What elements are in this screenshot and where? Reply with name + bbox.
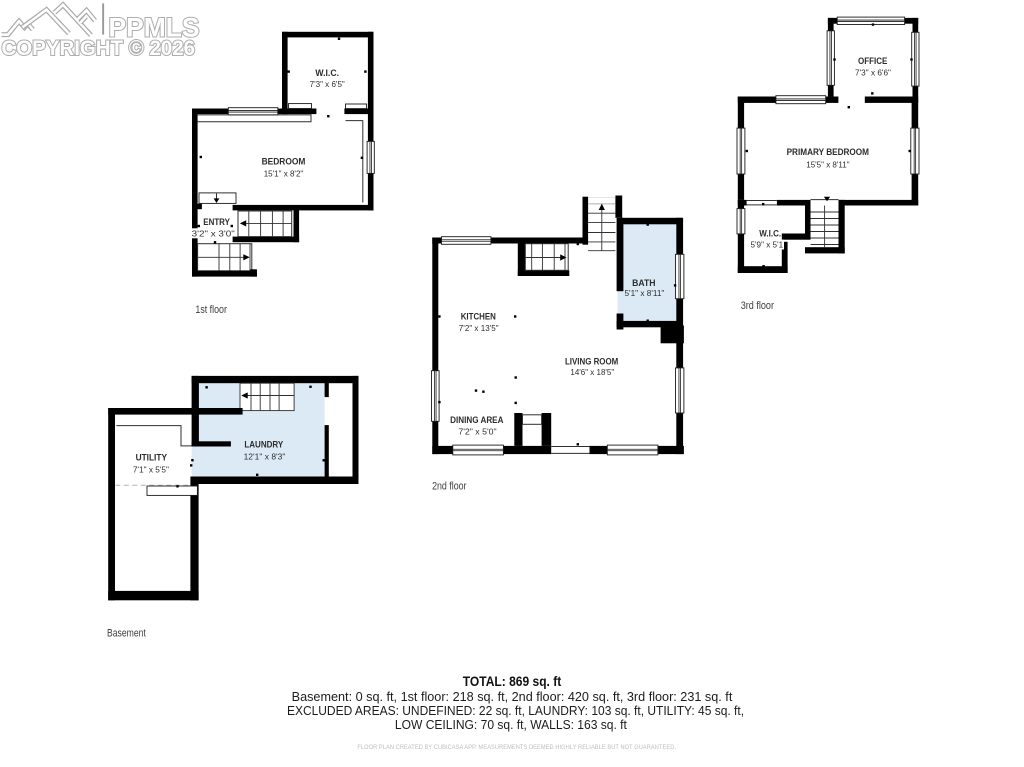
svg-text:W.I.C.: W.I.C. <box>759 229 781 239</box>
svg-text:7'2" x 13'5": 7'2" x 13'5" <box>459 323 499 333</box>
svg-text:7'1" x 5'5": 7'1" x 5'5" <box>133 465 169 475</box>
svg-text:BATH: BATH <box>632 278 656 288</box>
svg-text:BEDROOM: BEDROOM <box>262 157 306 167</box>
svg-text:W.I.C.: W.I.C. <box>315 68 339 78</box>
svg-text:2nd floor: 2nd floor <box>432 480 467 492</box>
svg-text:DINING AREA: DINING AREA <box>450 415 504 425</box>
svg-text:COPYRIGHT © 2026: COPYRIGHT © 2026 <box>2 36 196 60</box>
svg-text:Basement: 0 sq. ft, 1st floor:: Basement: 0 sq. ft, 1st floor: 218 sq. f… <box>292 689 733 704</box>
svg-text:PRIMARY BEDROOM: PRIMARY BEDROOM <box>787 147 870 157</box>
svg-text:OFFICE: OFFICE <box>858 56 887 66</box>
svg-text:KITCHEN: KITCHEN <box>461 312 497 322</box>
svg-text:7'3" x 6'5": 7'3" x 6'5" <box>310 79 345 89</box>
svg-text:15'5" x 8'11": 15'5" x 8'11" <box>806 160 849 170</box>
svg-text:LAUNDRY: LAUNDRY <box>244 440 283 450</box>
svg-text:7'2" x 5'0": 7'2" x 5'0" <box>458 426 496 436</box>
svg-text:12'1" x 8'3": 12'1" x 8'3" <box>244 451 286 461</box>
svg-text:EXCLUDED AREAS: UNDEFINED: 22: EXCLUDED AREAS: UNDEFINED: 22 sq. ft, LA… <box>287 703 744 718</box>
svg-text:7'3" x 6'6": 7'3" x 6'6" <box>855 67 891 77</box>
svg-text:14'6" x 18'5": 14'6" x 18'5" <box>570 367 614 377</box>
svg-text:3'2" x 3'0": 3'2" x 3'0" <box>192 229 235 239</box>
svg-text:5'9" x 5'1: 5'9" x 5'1 <box>751 240 784 250</box>
svg-text:UTILITY: UTILITY <box>136 453 167 463</box>
svg-text:1st floor: 1st floor <box>195 304 227 316</box>
svg-text:TOTAL: 869 sq. ft: TOTAL: 869 sq. ft <box>463 674 562 689</box>
svg-text:Basement: Basement <box>107 628 146 640</box>
svg-text:15'1" x 8'2": 15'1" x 8'2" <box>264 168 304 178</box>
svg-text:ENTRY: ENTRY <box>203 217 230 227</box>
svg-text:LOW CEILING: 70 sq. ft, WALLS:: LOW CEILING: 70 sq. ft, WALLS: 163 sq. f… <box>395 717 627 732</box>
svg-text:FLOOR PLAN CREATED BY CUBICASA: FLOOR PLAN CREATED BY CUBICASA APP. MEAS… <box>357 744 676 751</box>
svg-text:LIVING ROOM: LIVING ROOM <box>565 356 619 366</box>
svg-text:5'1" x 8'11": 5'1" x 8'11" <box>624 288 664 298</box>
svg-text:3rd floor: 3rd floor <box>741 300 775 312</box>
